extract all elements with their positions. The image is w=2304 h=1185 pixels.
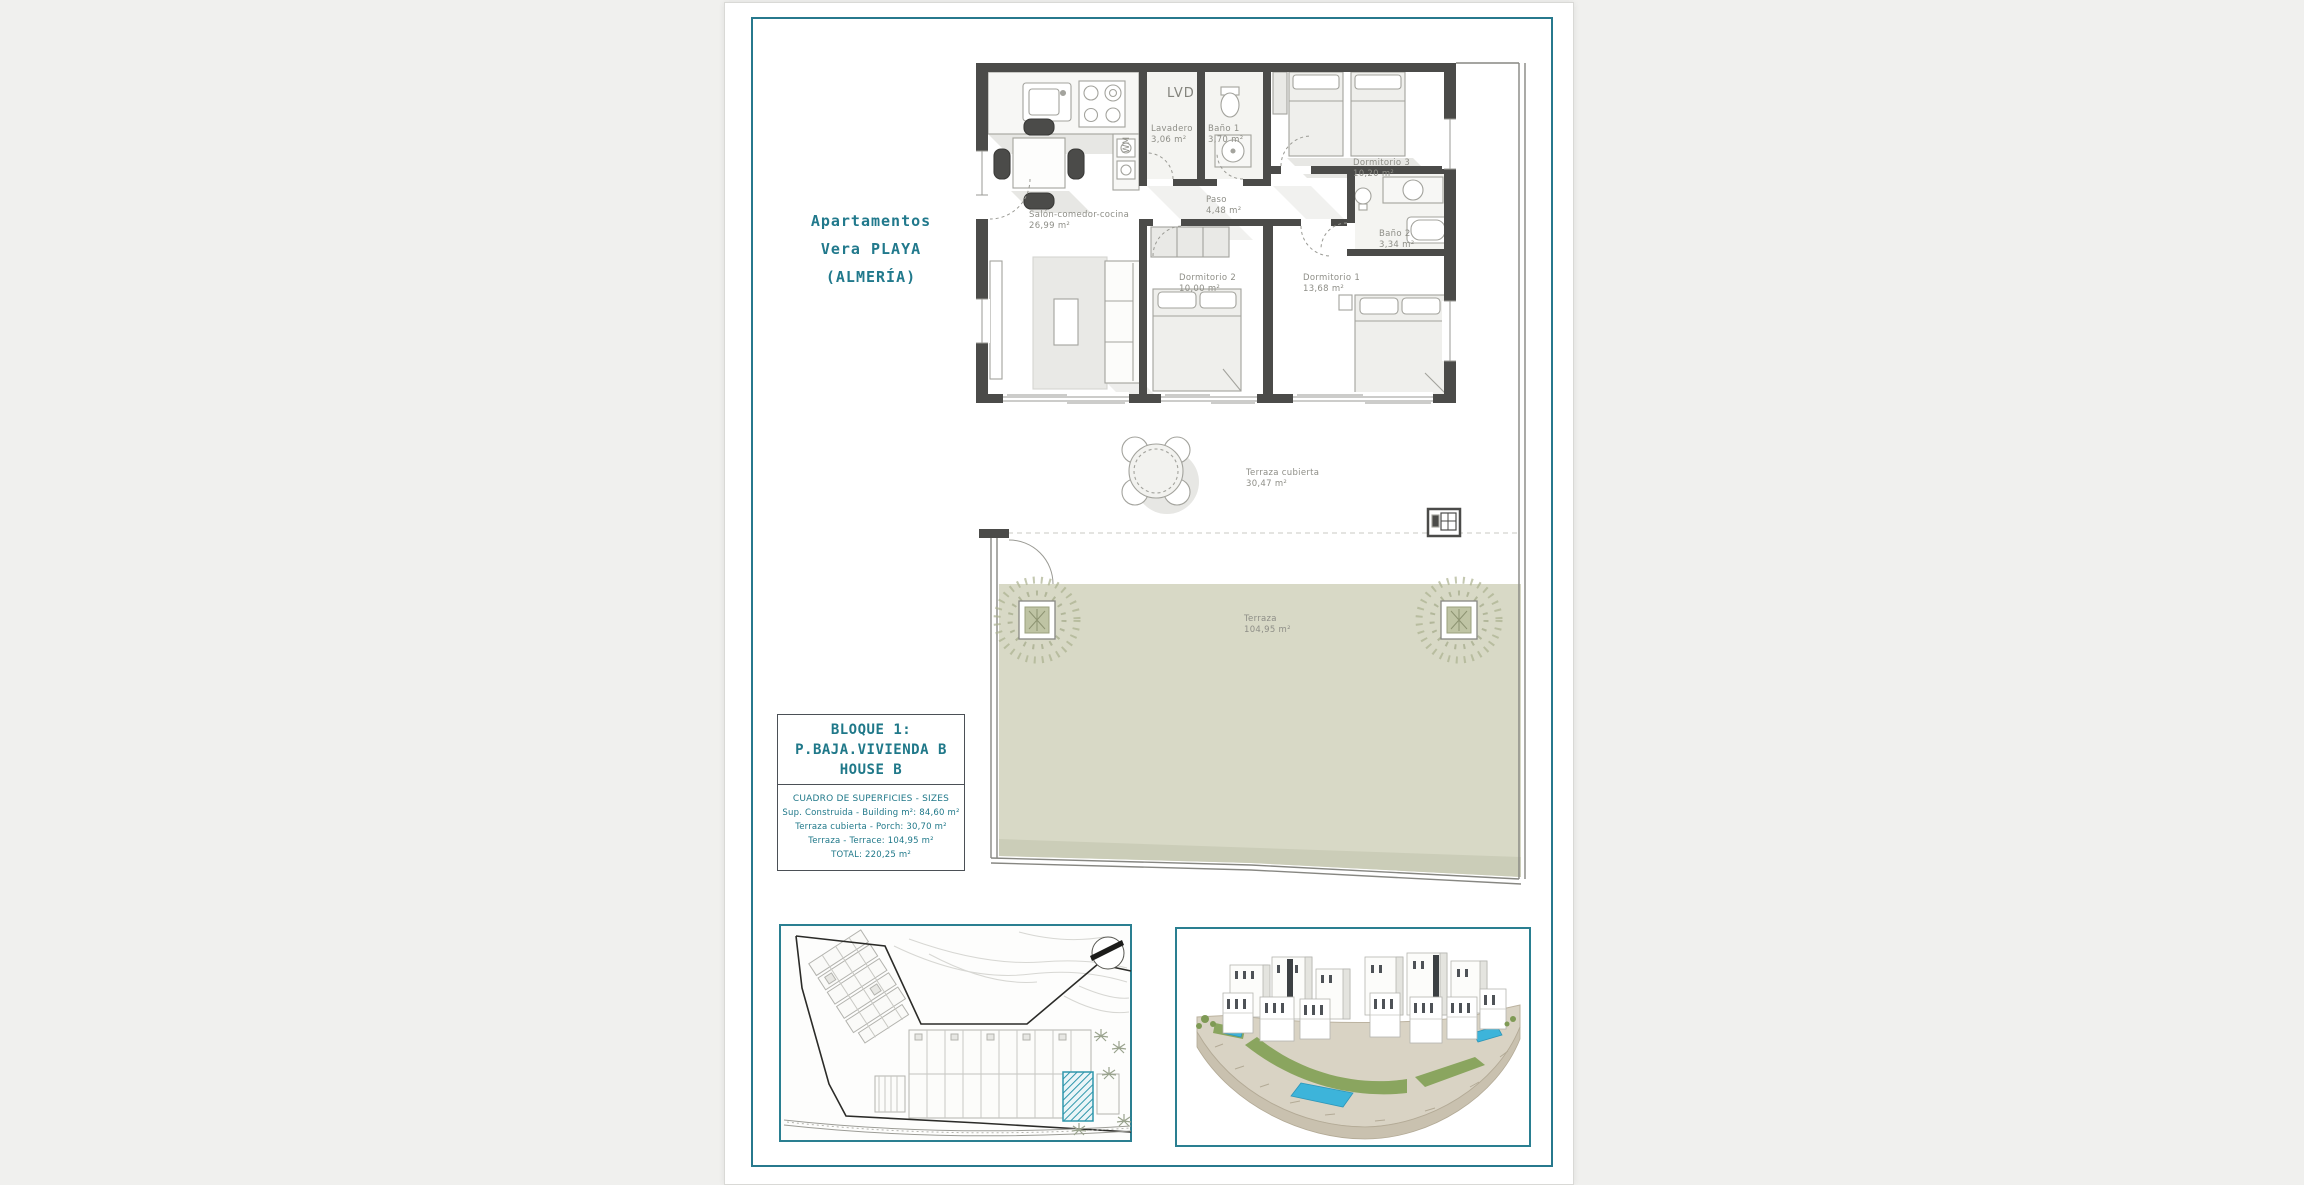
room-label-dorm3: Dormitorio 3 xyxy=(1353,158,1410,168)
room-label-terraza: Terraza xyxy=(1243,614,1277,624)
sizes-title: CUADRO DE SUPERFICIES - SIZES xyxy=(780,792,962,806)
block-line2: P.BAJA.VIVIENDA B xyxy=(780,740,962,760)
room-area-dorm3: 10,20 m² xyxy=(1353,169,1394,179)
gate-swing-arc xyxy=(1009,540,1053,584)
room-area-bano1: 3,70 m² xyxy=(1208,135,1243,145)
label-lvd: LVD xyxy=(1167,86,1195,101)
room-area-lavadero: 3,06 m² xyxy=(1151,135,1186,145)
room-area-terraza: 104,95 m² xyxy=(1244,625,1291,635)
faucet-icon xyxy=(1061,91,1066,96)
sizes-line-terrace: Terraza - Terrace: 104,95 m² xyxy=(780,834,962,848)
render-thumbnail xyxy=(1175,927,1531,1147)
highlighted-unit xyxy=(1063,1072,1093,1121)
sheet-background: Apartamentos Vera PLAYA (ALMERÍA) xyxy=(0,0,2304,1185)
sizes-line-total: TOTAL: 220,25 m² xyxy=(780,848,962,862)
sizes-table: CUADRO DE SUPERFICIES - SIZES Sup. Const… xyxy=(778,784,964,870)
room-area-terraza-cubierta: 30,47 m² xyxy=(1246,479,1287,489)
bedroom1-furniture xyxy=(1339,295,1445,397)
room-area-dorm2: 10,00 m² xyxy=(1179,284,1220,294)
room-area-salon: 26,99 m² xyxy=(1029,221,1070,231)
bedroom2-furniture xyxy=(1151,227,1241,391)
project-title-line1: Apartamentos xyxy=(775,207,967,235)
plan-page: Apartamentos Vera PLAYA (ALMERÍA) xyxy=(724,2,1574,1185)
utility-box xyxy=(1428,509,1460,536)
room-area-paso: 4,48 m² xyxy=(1206,206,1241,216)
room-label-paso: Paso xyxy=(1206,195,1227,205)
site-plan-svg xyxy=(779,924,1132,1142)
room-label-lavadero: Lavadero xyxy=(1151,124,1193,134)
room-label-dorm1: Dormitorio 1 xyxy=(1303,273,1360,283)
floor-plan: Salón-comedor-cocina 26,99 m² Lavadero 3… xyxy=(941,41,1561,901)
unit-info-box: BLOQUE 1: P.BAJA.VIVIENDA B HOUSE B CUAD… xyxy=(777,714,965,871)
kitchen-counter xyxy=(988,72,1139,134)
room-area-bano2: 3,34 m² xyxy=(1379,240,1414,250)
room-label-dorm2: Dormitorio 2 xyxy=(1179,273,1236,283)
render-svg xyxy=(1175,927,1531,1147)
project-title-line3: (ALMERÍA) xyxy=(775,263,967,291)
block-line3: HOUSE B xyxy=(780,760,962,780)
block-line1: BLOQUE 1: xyxy=(780,720,962,740)
label-wm: WM xyxy=(1122,137,1132,153)
room-label-bano1: Baño 1 xyxy=(1208,124,1240,134)
bedroom3-furniture xyxy=(1273,72,1405,156)
cooktop-icon xyxy=(1079,81,1125,127)
project-title-line2: Vera PLAYA xyxy=(775,235,967,263)
floor-plan-area: Salón-comedor-cocina 26,99 m² Lavadero 3… xyxy=(941,41,1561,901)
room-label-bano2: Baño 2 xyxy=(1379,229,1411,239)
tv-unit xyxy=(990,261,1002,379)
sofa xyxy=(1105,261,1141,383)
room-area-dorm1: 13,68 m² xyxy=(1303,284,1344,294)
unit-block-title: BLOQUE 1: P.BAJA.VIVIENDA B HOUSE B xyxy=(778,715,964,784)
project-title: Apartamentos Vera PLAYA (ALMERÍA) xyxy=(775,207,967,291)
room-label-salon: Salón-comedor-cocina xyxy=(1029,209,1129,220)
sizes-line-built: Sup. Construida - Building m²: 84,60 m² xyxy=(780,806,962,820)
gate-wall-stub xyxy=(979,529,1009,538)
terrace-table-set xyxy=(1122,437,1190,505)
site-plan-thumbnail xyxy=(779,924,1132,1142)
sizes-line-porch: Terraza cubierta - Porch: 30,70 m² xyxy=(780,820,962,834)
room-label-terraza-cubierta: Terraza cubierta xyxy=(1245,468,1319,478)
coffee-table xyxy=(1054,299,1078,345)
